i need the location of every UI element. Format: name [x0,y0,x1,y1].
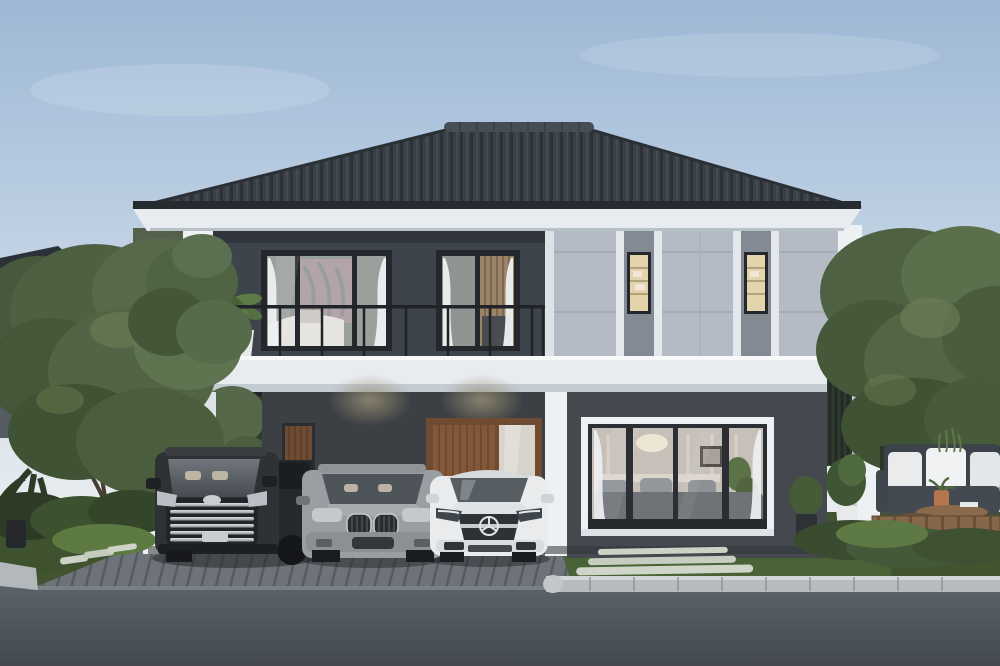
shelf-items [635,284,645,290]
sliding-mullion [626,424,633,529]
curb-end-cap [543,575,563,593]
van-emblem [203,495,221,505]
railing-top-rail [190,305,546,309]
tree-canopy [176,300,252,364]
window-mullion [475,254,480,348]
mullion [654,227,662,365]
bottom-rail [588,519,767,529]
black-van [146,447,314,565]
front-fern [836,520,928,548]
cloud [30,64,330,116]
curb-top [546,576,1000,580]
dark-pot [6,520,26,548]
plant-foliage [789,476,823,516]
suv-headlight-left [312,508,342,522]
canopy-highlight [36,386,84,414]
roof-fascia [133,209,861,231]
narrow-window-right [744,252,768,314]
sedan-intake-left [444,542,464,550]
shelf-items [750,271,759,277]
sedan-mirror-left [426,494,439,503]
canopy-highlight [900,298,960,338]
suv-seats [378,484,392,492]
right-curb [543,575,1000,593]
upper-light-wall [545,227,838,365]
sofa-pillow [970,452,1000,490]
sofa-pillow [888,452,922,490]
tree-canopy [172,234,232,278]
sofa-pillow [926,448,966,490]
stepping-stones-right [576,546,753,575]
suv-wheel [406,550,434,562]
mullion [545,227,554,365]
van-plate [202,532,228,542]
band-highlight [143,356,832,360]
grey-suv [296,464,448,562]
suv-windshield [322,474,424,504]
van-mirror-right [262,476,277,487]
sedan-wheel [440,552,464,562]
suv-roof [318,464,426,473]
mullion [771,227,779,365]
window-mullion [352,254,357,348]
eave-shadow [133,201,861,209]
upper-light-section [545,225,862,365]
plant-foliage [838,454,866,486]
sliding-mullion [722,424,729,529]
downlight-glow [328,374,412,426]
sofa-armrest [876,470,888,512]
canopy-highlight [864,374,916,406]
table-books [960,502,978,507]
narrow-window-left [627,252,651,314]
outer-sill [581,529,774,536]
van-roof [165,447,267,456]
shelf-items [633,271,642,277]
white-sedan [426,470,554,562]
suv-headlight-right [402,508,432,522]
window-glass-lit [747,255,765,311]
cloud [580,33,940,77]
suv-wheel [312,550,340,562]
mullion [733,227,741,365]
suv-fog-left [316,539,332,547]
van-mirror-left [146,478,161,489]
asphalt-road [0,586,1000,666]
sofa-cushion [640,478,672,494]
sedan-intake-center [468,545,512,552]
suv-intake [352,537,394,549]
sedan-wheel [512,552,536,562]
sliding-mullion [673,424,678,529]
mullion [616,227,624,365]
suv-mirror-left [296,496,310,505]
entry-pillar [545,392,567,556]
van-seats [212,471,228,480]
van-seats [185,471,201,480]
fascia-shadow-line [150,228,844,231]
window-glass-lit [630,255,648,311]
van-front-wheel [166,550,192,562]
sedan-intake-right [516,542,536,550]
suv-seats [344,484,358,492]
sedan-mirror-right [541,494,554,503]
sliding-glass-wall [581,417,774,536]
driveway-edge [30,586,574,590]
architectural-render [0,0,1000,666]
ridge-cap [444,122,594,132]
render-canvas [0,0,1000,666]
suv-fog-right [414,539,430,547]
